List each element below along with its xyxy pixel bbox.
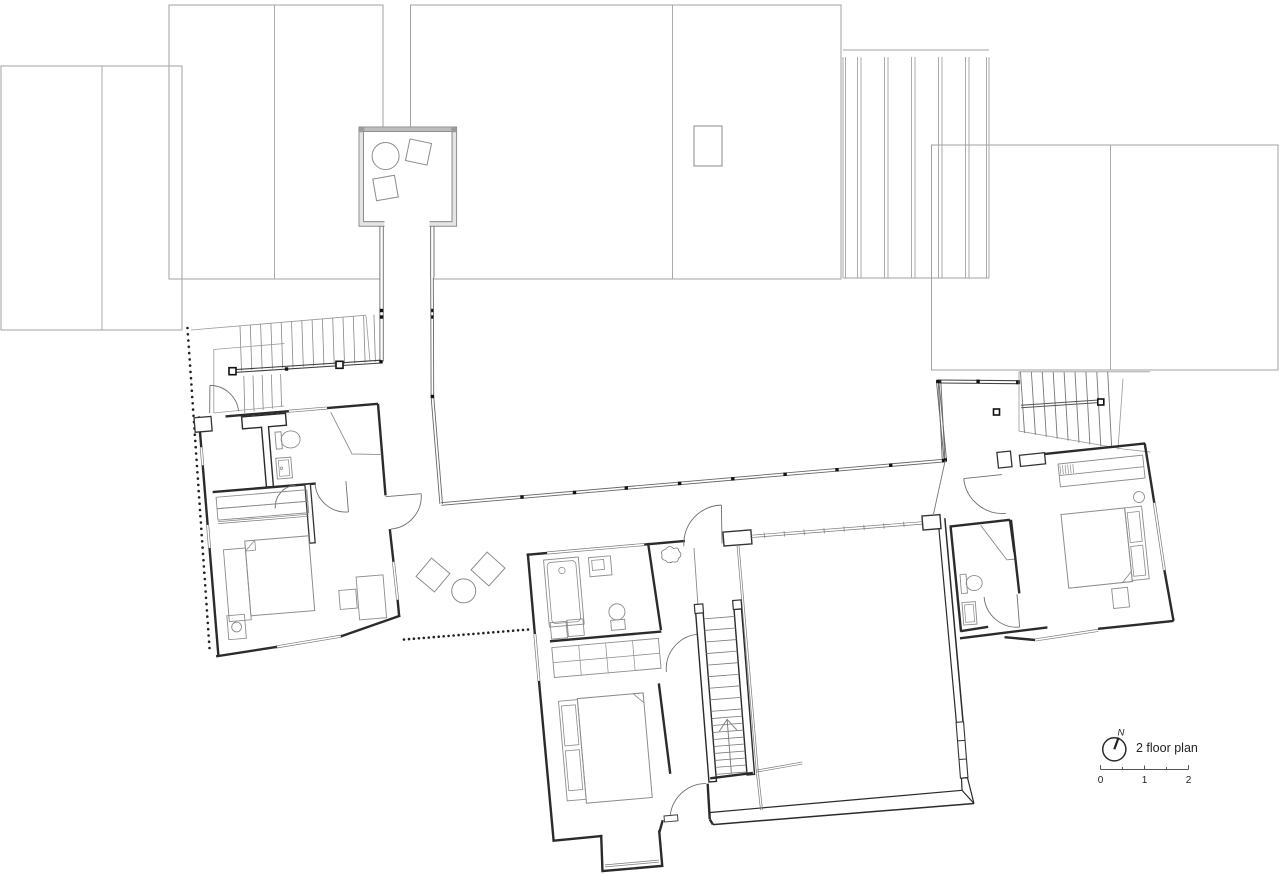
svg-text:2 floor plan: 2 floor plan	[1136, 741, 1198, 755]
svg-text:1: 1	[1142, 775, 1148, 786]
svg-text:N: N	[1118, 728, 1125, 739]
svg-text:0: 0	[1098, 775, 1104, 786]
svg-text:2: 2	[1186, 775, 1192, 786]
